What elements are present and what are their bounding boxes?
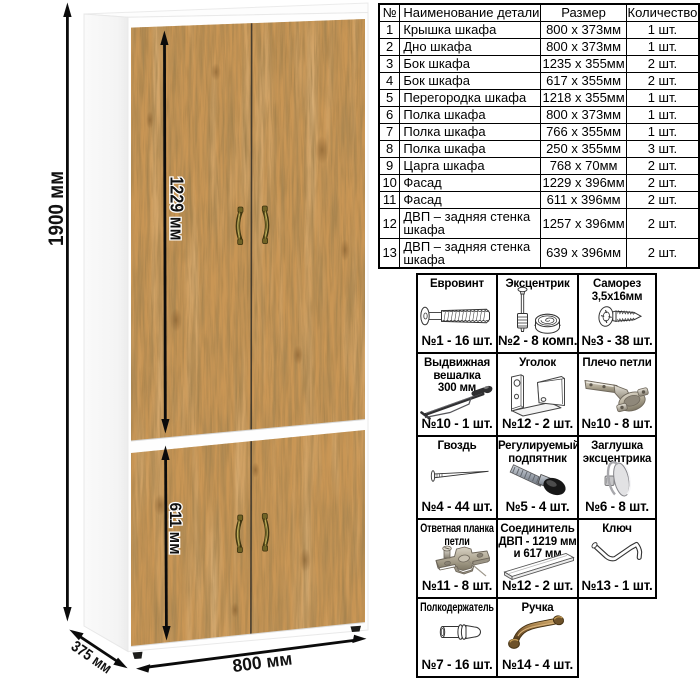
svg-text:800 мм: 800 мм xyxy=(231,648,293,676)
svg-text:1900 мм: 1900 мм xyxy=(45,171,68,246)
svg-text:611 мм: 611 мм xyxy=(166,503,185,555)
svg-text:1229 мм: 1229 мм xyxy=(166,177,186,241)
